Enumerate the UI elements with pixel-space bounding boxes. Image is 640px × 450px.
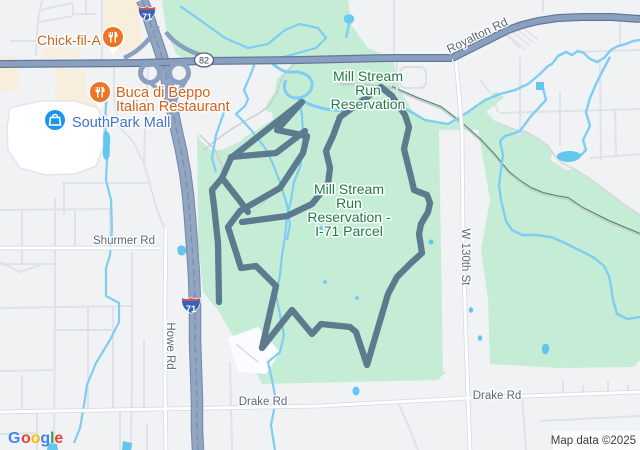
svg-text:82: 82 (199, 56, 209, 66)
svg-text:o: o (31, 430, 41, 447)
svg-text:G: G (8, 430, 20, 447)
svg-text:Drake Rd: Drake Rd (239, 396, 288, 408)
svg-text:Howe Rd: Howe Rd (164, 322, 176, 369)
svg-text:71: 71 (186, 304, 197, 315)
svg-text:Drake Rd: Drake Rd (473, 390, 522, 402)
svg-text:I-71 Parcel: I-71 Parcel (315, 223, 383, 239)
svg-text:Map data ©2025: Map data ©2025 (551, 435, 636, 447)
svg-text:Italian Restaurant: Italian Restaurant (116, 99, 230, 115)
svg-text:71: 71 (142, 12, 152, 22)
svg-text:W 130th St: W 130th St (459, 229, 471, 287)
svg-text:e: e (54, 430, 63, 447)
svg-text:g: g (40, 430, 50, 447)
svg-text:Reservation: Reservation (331, 96, 406, 112)
svg-text:Chick-fil-A: Chick-fil-A (37, 32, 101, 48)
svg-text:SouthPark Mall: SouthPark Mall (72, 115, 170, 131)
svg-text:o: o (21, 430, 31, 447)
svg-text:Shurmer Rd: Shurmer Rd (93, 235, 155, 247)
